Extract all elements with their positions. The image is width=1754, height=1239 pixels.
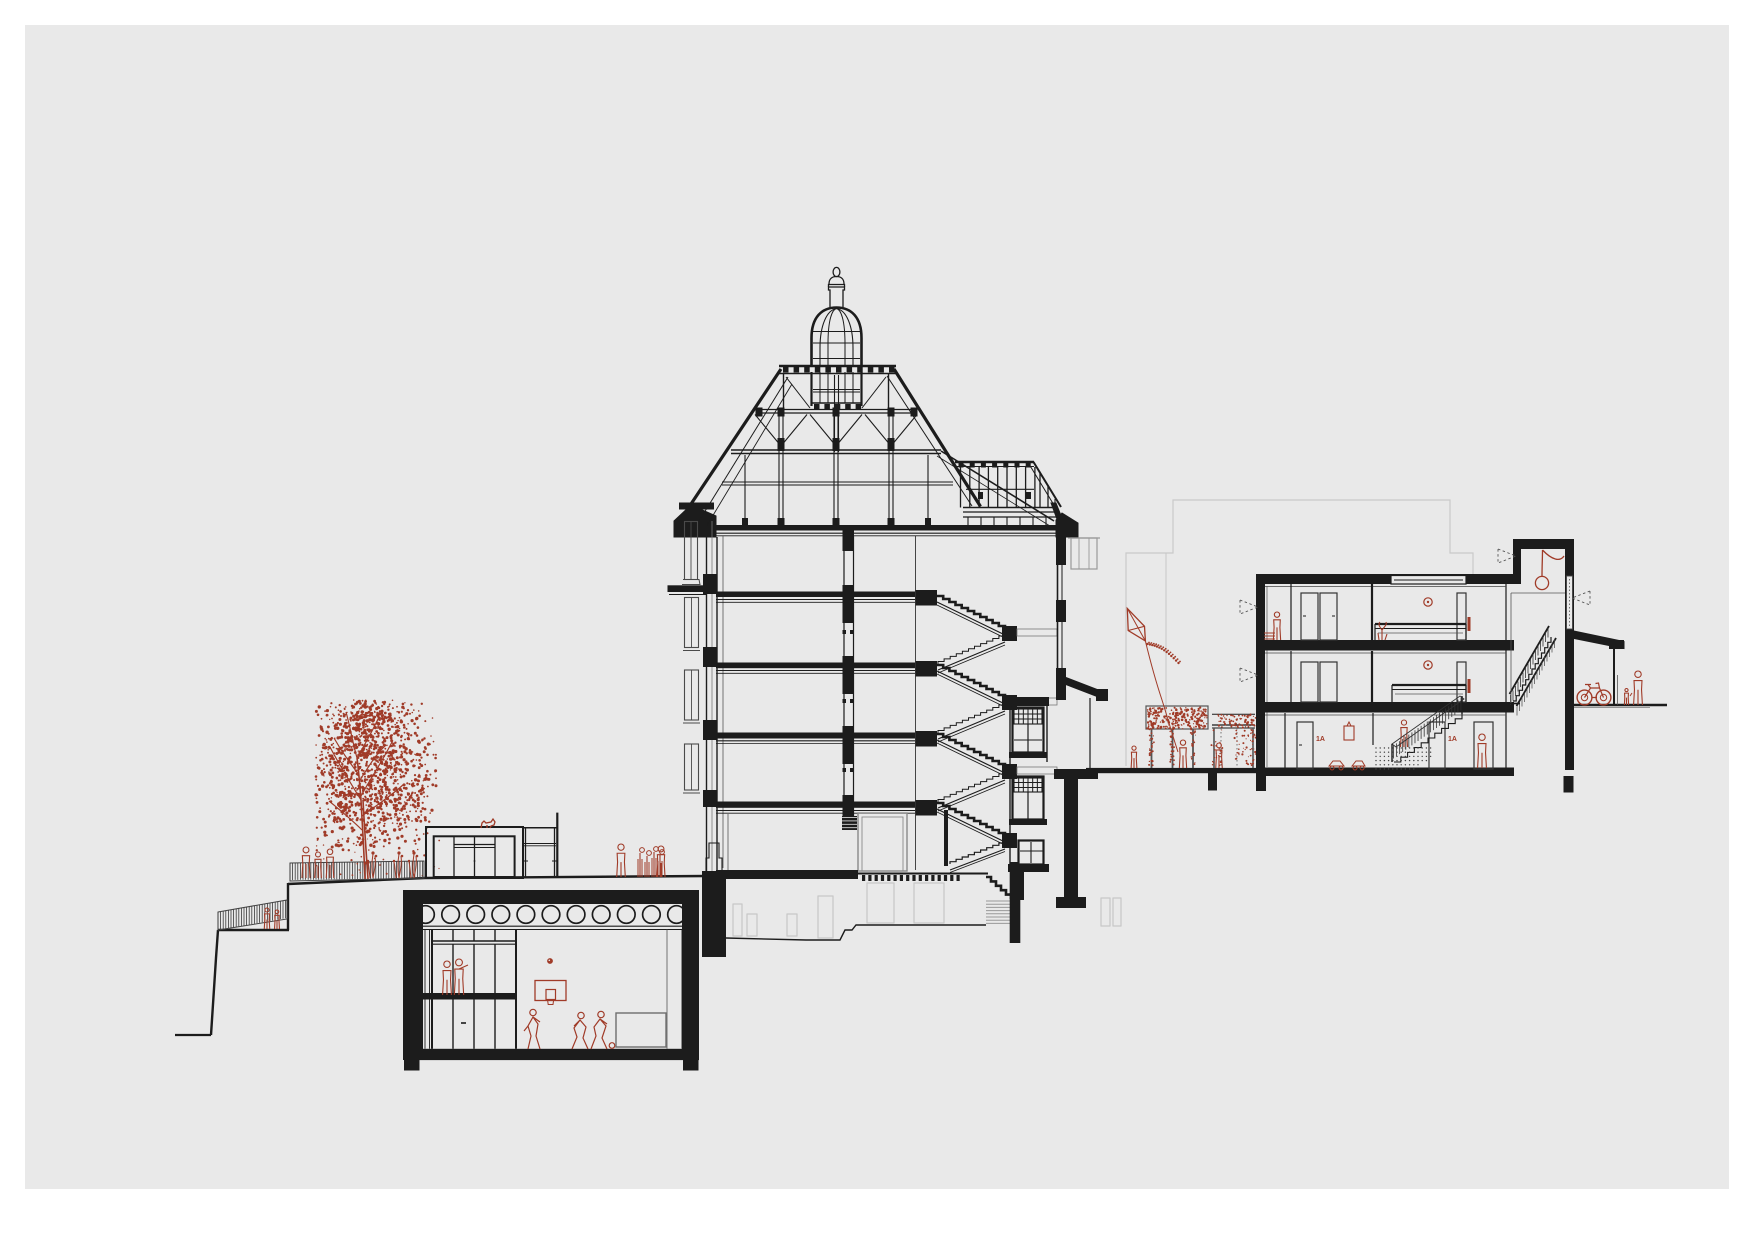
svg-text:1A: 1A [1448,736,1457,743]
svg-text:1A: 1A [1316,736,1325,743]
